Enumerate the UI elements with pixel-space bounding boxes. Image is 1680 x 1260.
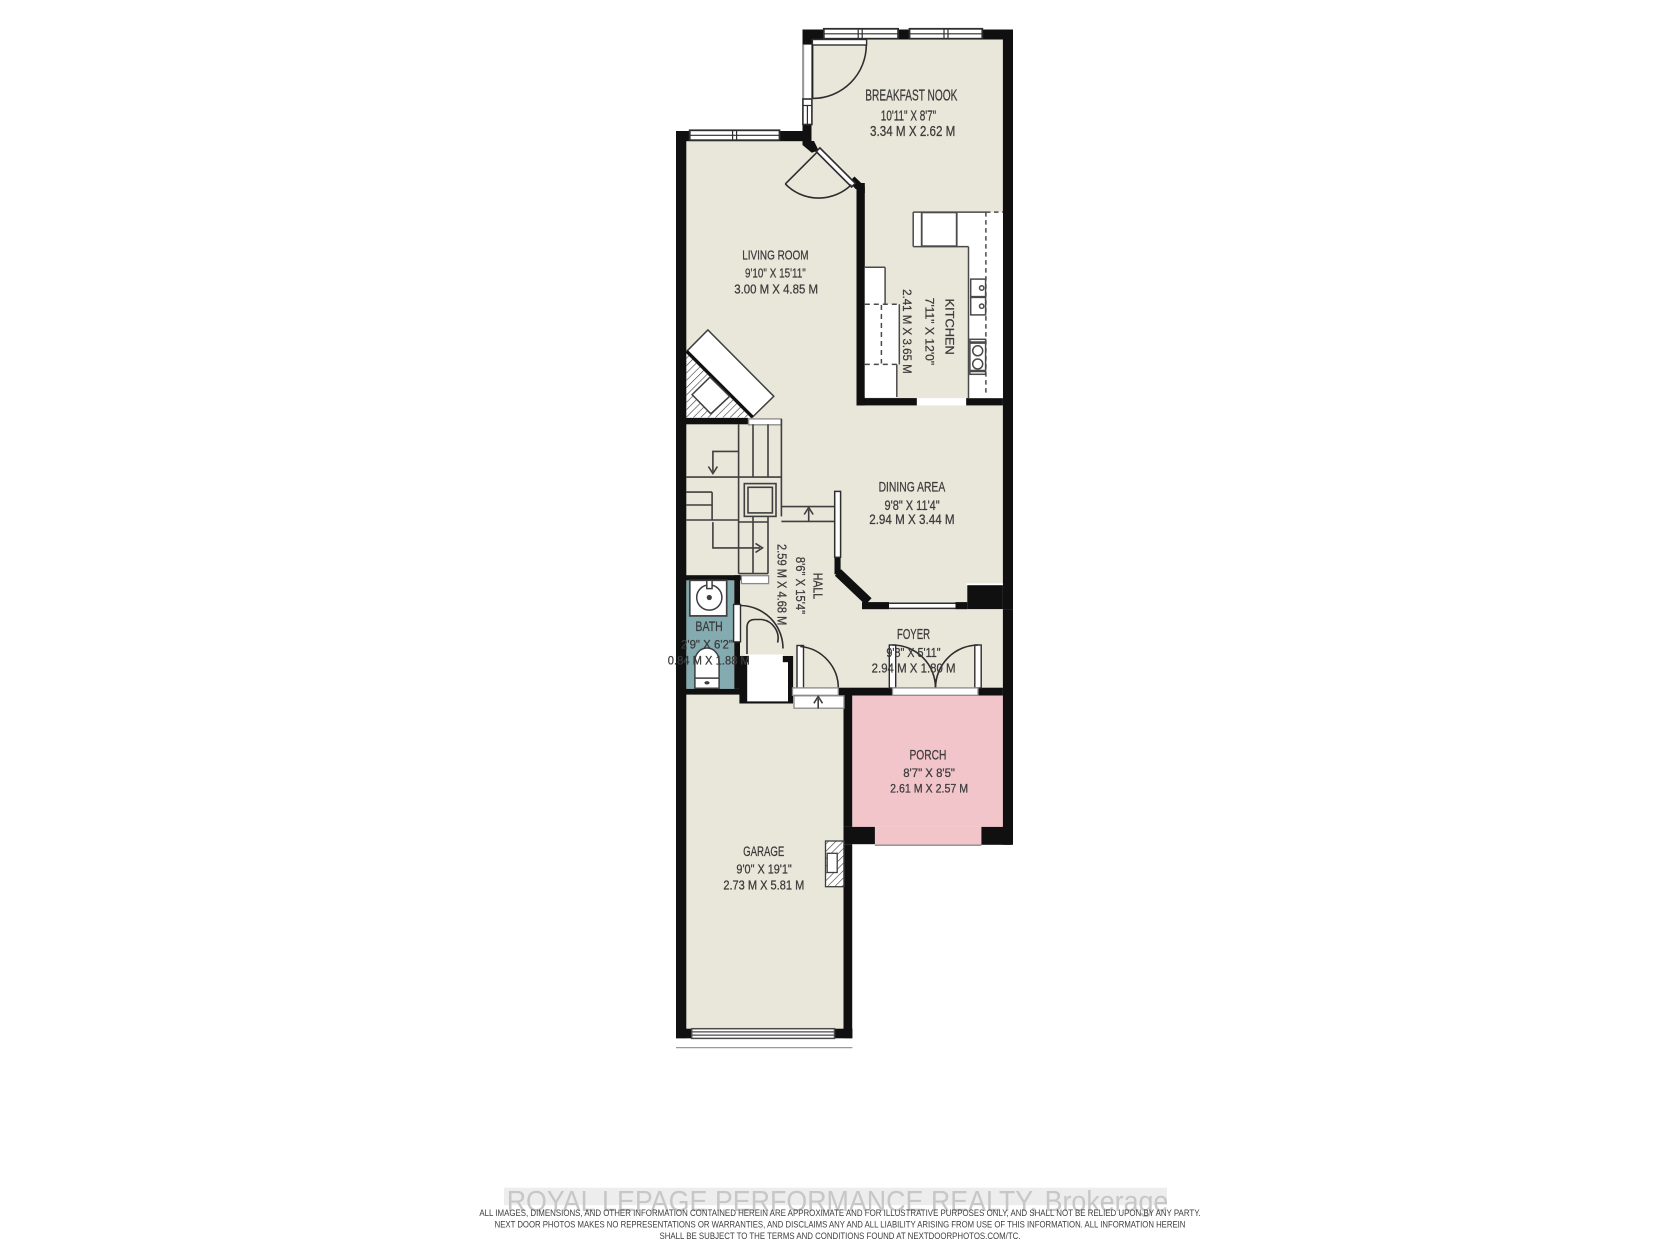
svg-text:0.84 M X 1.88 M: 0.84 M X 1.88 M	[668, 654, 750, 668]
svg-text:ALL IMAGES, DIMENSIONS, AND OT: ALL IMAGES, DIMENSIONS, AND OTHER INFORM…	[479, 1207, 1200, 1218]
svg-text:2.61 M X 2.57 M: 2.61 M X 2.57 M	[890, 783, 968, 796]
svg-text:SHALL BE SUBJECT TO THE TERMS: SHALL BE SUBJECT TO THE TERMS AND CONDIT…	[660, 1230, 1021, 1241]
svg-text:3.00 M X 4.85 M: 3.00 M X 4.85 M	[734, 282, 818, 297]
svg-text:LIVING ROOM: LIVING ROOM	[742, 248, 808, 263]
svg-text:2.41 M X 3.65 M: 2.41 M X 3.65 M	[900, 289, 914, 374]
svg-text:KITCHEN: KITCHEN	[943, 299, 957, 355]
svg-text:9'10" X 15'11": 9'10" X 15'11"	[745, 266, 806, 281]
svg-text:GARAGE: GARAGE	[743, 843, 784, 859]
svg-text:NEXT DOOR PHOTOS MAKES NO REPR: NEXT DOOR PHOTOS MAKES NO REPRESENTATION…	[495, 1219, 1186, 1230]
svg-text:3.34 M X 2.62 M: 3.34 M X 2.62 M	[870, 122, 955, 139]
svg-text:2'9" X 6'2": 2'9" X 6'2"	[681, 637, 733, 651]
svg-text:9'0" X 19'1": 9'0" X 19'1"	[736, 863, 791, 877]
svg-text:7'11" X 12'0": 7'11" X 12'0"	[923, 298, 937, 366]
svg-text:BATH: BATH	[695, 619, 722, 635]
svg-text:BREAKFAST NOOK: BREAKFAST NOOK	[865, 86, 957, 104]
svg-text:9'8" X 5'11": 9'8" X 5'11"	[886, 645, 940, 660]
svg-text:PORCH: PORCH	[909, 747, 946, 763]
svg-text:HALL: HALL	[810, 573, 825, 600]
svg-text:2.73 M X 5.81 M: 2.73 M X 5.81 M	[723, 879, 804, 893]
svg-text:2.59 M X 4.68 M: 2.59 M X 4.68 M	[774, 544, 789, 625]
svg-text:2.94 M X 3.44 M: 2.94 M X 3.44 M	[869, 511, 954, 527]
svg-text:2.94 M X 1.80 M: 2.94 M X 1.80 M	[872, 661, 956, 676]
svg-text:FOYER: FOYER	[897, 626, 930, 643]
svg-text:DINING AREA: DINING AREA	[879, 479, 946, 495]
svg-text:8'7" X 8'5": 8'7" X 8'5"	[903, 767, 955, 780]
svg-text:8'6" X 15'4": 8'6" X 15'4"	[793, 557, 808, 614]
